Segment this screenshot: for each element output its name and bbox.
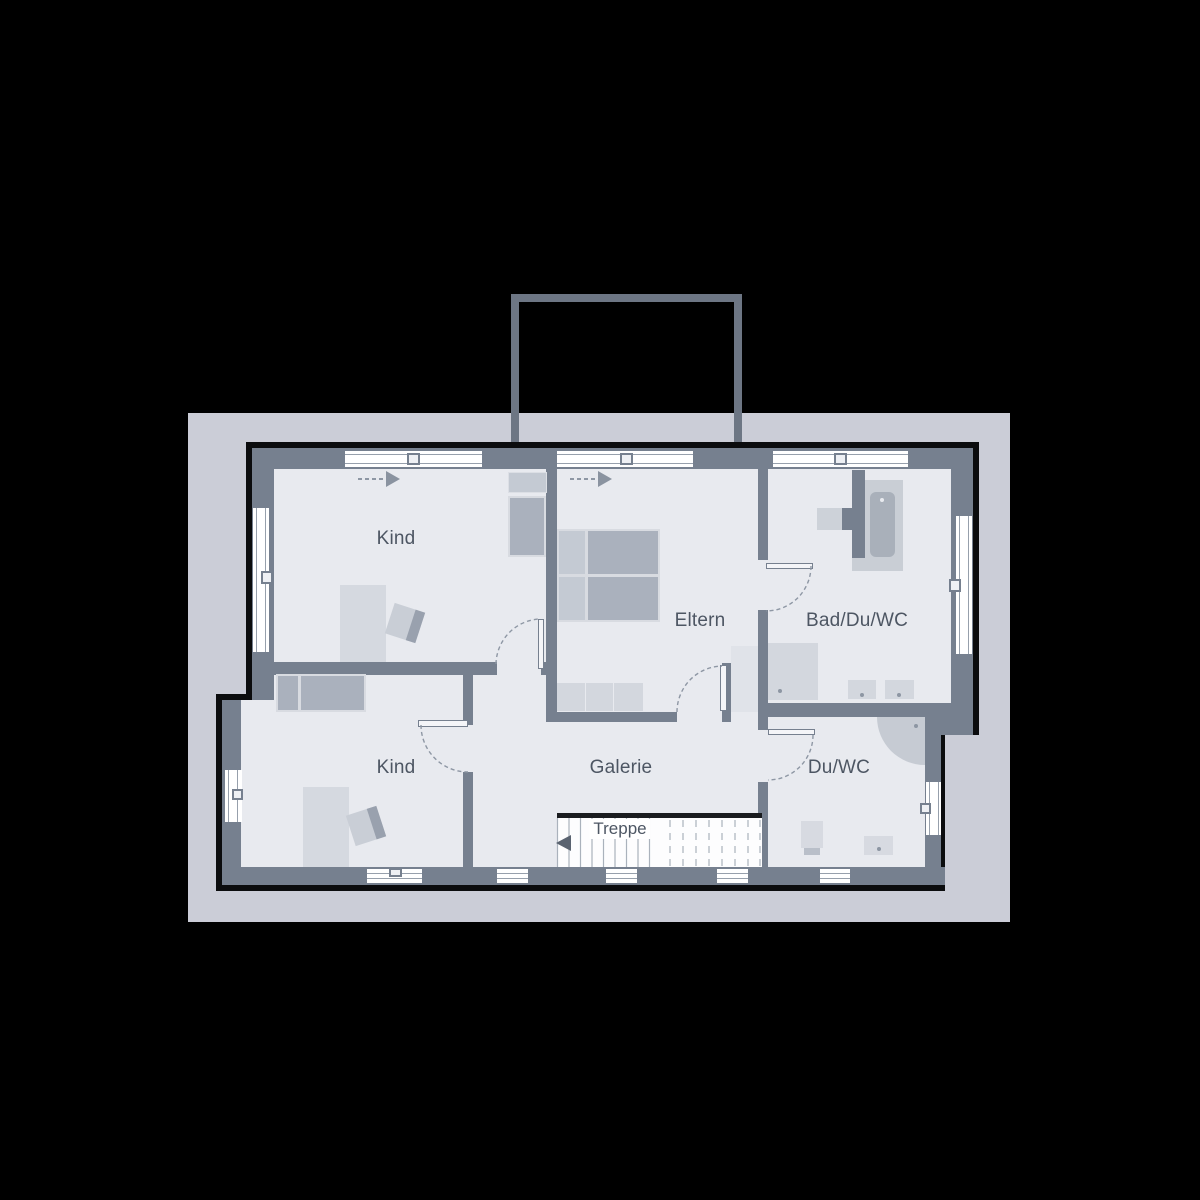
room-label-kind-top: Kind — [377, 528, 416, 550]
room-label-galerie: Galerie — [590, 757, 653, 779]
corner-shower-dot — [914, 724, 918, 728]
room-label-eltern: Eltern — [675, 610, 726, 632]
plan-linework — [0, 0, 1200, 1200]
corner-shower-duwc — [877, 717, 925, 765]
door-swing-arc-kind-top — [496, 619, 539, 664]
room-label-bad: Bad/Du/WC — [806, 610, 908, 632]
stair-direction-arrow-icon — [556, 835, 571, 851]
door-swing-arc-kind-bottom — [421, 725, 468, 772]
stair-risers-dashed — [670, 820, 760, 867]
room-label-duwc: Du/WC — [808, 757, 870, 779]
stair-label: Treppe — [589, 819, 650, 839]
direction-arrow-icon — [598, 471, 612, 487]
room-label-kind-bottom: Kind — [377, 757, 416, 779]
floorplan-canvas: Kind Eltern Bad/Du/WC Kind Galerie Du/WC… — [0, 0, 1200, 1200]
door-swing-arc-eltern — [677, 666, 722, 712]
door-swing-arc-bad — [766, 566, 811, 611]
door-swing-arc-duwc — [768, 735, 813, 780]
direction-arrow-icon — [386, 471, 400, 487]
